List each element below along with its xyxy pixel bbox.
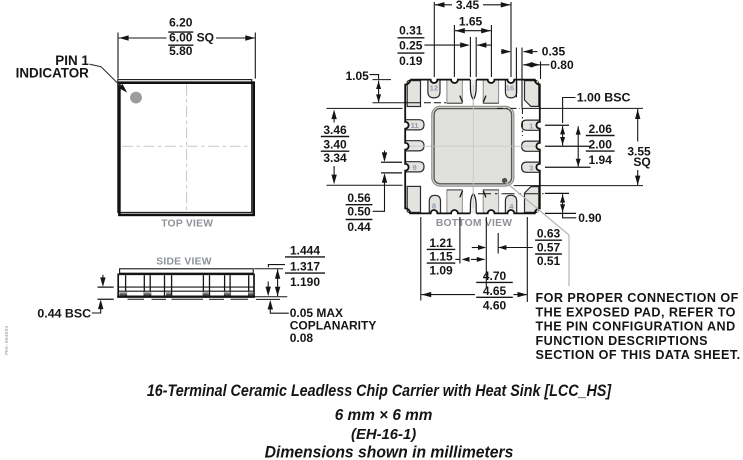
svg-text:12: 12: [430, 84, 438, 93]
svg-text:1.65: 1.65: [459, 15, 483, 29]
svg-text:3.40: 3.40: [323, 138, 347, 152]
svg-text:1.05: 1.05: [345, 69, 369, 83]
svg-text:0.56: 0.56: [347, 191, 371, 205]
svg-text:0.44 BSC: 0.44 BSC: [37, 306, 91, 320]
svg-text:4.60: 4.60: [483, 299, 507, 313]
svg-text:FUNCTION DESCRIPTIONS: FUNCTION DESCRIPTIONS: [536, 334, 708, 348]
svg-text:16-Terminal Ceramic Leadless C: 16-Terminal Ceramic Leadless Chip Carrie…: [147, 382, 612, 400]
svg-text:SIDE VIEW: SIDE VIEW: [156, 256, 211, 267]
svg-text:0.50: 0.50: [347, 205, 371, 219]
svg-text:6 mm × 6 mm: 6 mm × 6 mm: [335, 407, 433, 424]
svg-text:4.70: 4.70: [483, 269, 507, 283]
svg-text:1.21: 1.21: [429, 236, 453, 250]
svg-text:0.08: 0.08: [290, 331, 314, 345]
svg-text:6.00: 6.00: [169, 31, 193, 45]
svg-text:8: 8: [432, 201, 436, 210]
svg-text:3.34: 3.34: [323, 151, 347, 165]
svg-text:1.15: 1.15: [429, 250, 453, 264]
svg-text:0.51: 0.51: [537, 254, 561, 268]
svg-text:(EH-16-1): (EH-16-1): [351, 426, 416, 443]
svg-text:THE PIN CONFIGURATION AND: THE PIN CONFIGURATION AND: [536, 320, 736, 334]
svg-text:SQ: SQ: [633, 155, 650, 169]
svg-text:0.80: 0.80: [550, 58, 574, 72]
svg-text:BOTTOM VIEW: BOTTOM VIEW: [436, 218, 512, 229]
svg-text:PKG-004903: PKG-004903: [4, 326, 10, 355]
svg-text:3.45: 3.45: [456, 0, 480, 12]
svg-text:SECTION OF THIS DATA SHEET.: SECTION OF THIS DATA SHEET.: [536, 348, 741, 362]
svg-text:2.00: 2.00: [589, 138, 613, 152]
svg-text:THE EXPOSED PAD, REFER TO: THE EXPOSED PAD, REFER TO: [536, 305, 736, 319]
svg-text:6.20: 6.20: [169, 15, 193, 29]
svg-text:4.65: 4.65: [483, 284, 507, 298]
svg-text:SQ: SQ: [197, 31, 214, 45]
svg-text:3.46: 3.46: [323, 123, 347, 137]
svg-text:0.31: 0.31: [399, 24, 423, 38]
svg-text:11: 11: [411, 121, 420, 130]
svg-text:2.06: 2.06: [589, 122, 613, 136]
svg-text:0.25: 0.25: [399, 38, 423, 52]
svg-text:1.444: 1.444: [290, 244, 320, 258]
svg-text:1.190: 1.190: [290, 275, 320, 289]
svg-text:1.317: 1.317: [290, 259, 320, 273]
svg-text:0.90: 0.90: [578, 211, 602, 225]
svg-text:Dimensions shown in millimeter: Dimensions shown in millimeters: [265, 442, 514, 460]
svg-text:INDICATOR: INDICATOR: [16, 66, 89, 81]
svg-text:0.44: 0.44: [347, 220, 371, 234]
svg-text:9: 9: [412, 163, 416, 172]
svg-text:1.09: 1.09: [429, 263, 453, 277]
svg-text:FOR PROPER CONNECTION OF: FOR PROPER CONNECTION OF: [536, 291, 739, 305]
svg-text:0.57: 0.57: [537, 240, 561, 254]
svg-text:5.80: 5.80: [169, 44, 193, 58]
svg-text:16: 16: [506, 84, 514, 93]
svg-text:3: 3: [529, 163, 533, 172]
svg-text:1.94: 1.94: [589, 153, 613, 167]
svg-text:0.63: 0.63: [537, 227, 561, 241]
svg-text:0.19: 0.19: [399, 54, 423, 68]
svg-text:TOP VIEW: TOP VIEW: [161, 218, 213, 229]
svg-text:1.00 BSC: 1.00 BSC: [577, 90, 631, 104]
svg-text:0.35: 0.35: [542, 45, 566, 59]
